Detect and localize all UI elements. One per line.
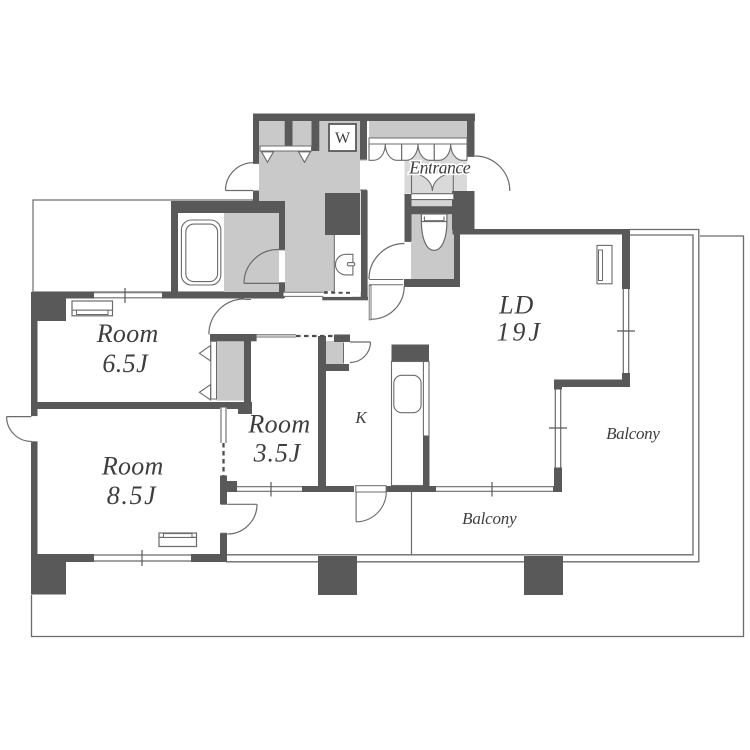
svg-text:Room: Room	[96, 319, 159, 348]
svg-text:Room: Room	[247, 409, 310, 438]
svg-text:LD: LD	[498, 291, 533, 320]
svg-text:3.5J: 3.5J	[253, 439, 302, 468]
svg-text:Entrance: Entrance	[408, 158, 470, 178]
svg-text:Balcony: Balcony	[462, 509, 517, 528]
svg-text:19J: 19J	[496, 318, 541, 347]
svg-text:8.5J: 8.5J	[107, 481, 157, 510]
svg-text:Room: Room	[101, 451, 163, 480]
svg-text:6.5J: 6.5J	[102, 349, 149, 378]
svg-text:W: W	[335, 130, 351, 147]
svg-text:K: K	[354, 408, 368, 427]
svg-text:Balcony: Balcony	[606, 424, 660, 443]
